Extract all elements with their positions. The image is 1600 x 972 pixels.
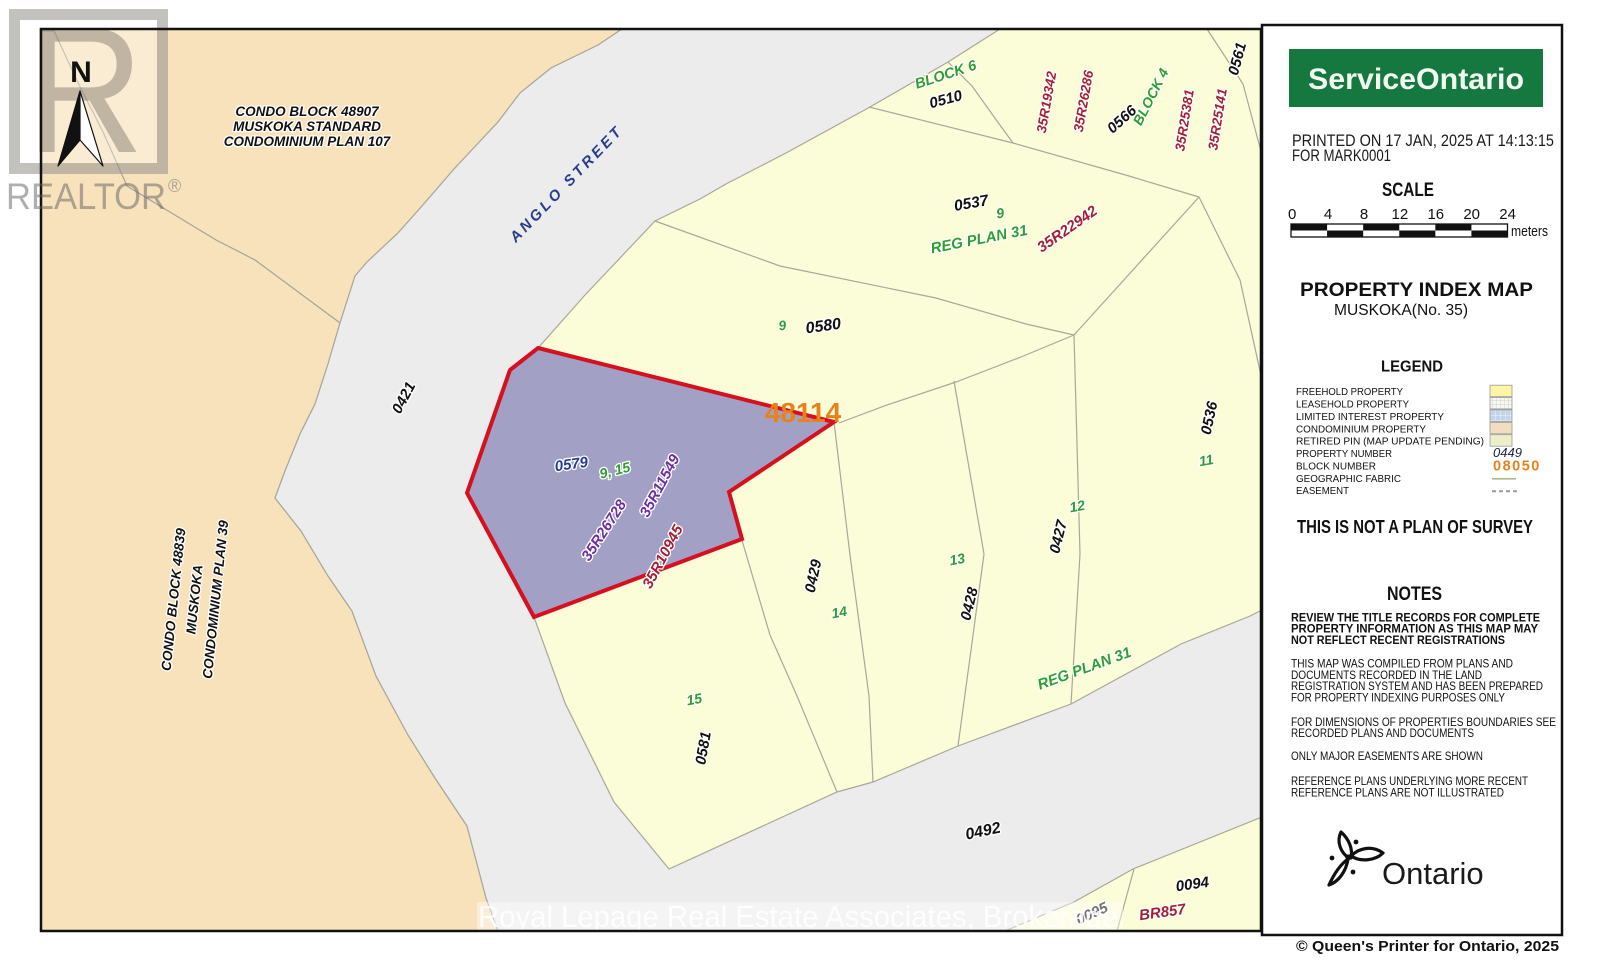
svg-text:16: 16 bbox=[1427, 206, 1444, 223]
svg-text:© Queen's Printer for Ontario,: © Queen's Printer for Ontario, 2025 bbox=[1296, 938, 1559, 955]
svg-text:14: 14 bbox=[830, 603, 848, 621]
svg-text:CONDOMINIUM PLAN 107: CONDOMINIUM PLAN 107 bbox=[224, 134, 392, 149]
svg-text:LEASEHOLD PROPERTY: LEASEHOLD PROPERTY bbox=[1296, 399, 1409, 411]
svg-text:N: N bbox=[70, 56, 92, 89]
svg-text:RECORDED PLANS AND DOCUMENTS: RECORDED PLANS AND DOCUMENTS bbox=[1291, 726, 1474, 740]
svg-text:12: 12 bbox=[1068, 497, 1086, 515]
svg-text:REALTOR: REALTOR bbox=[6, 176, 166, 217]
svg-text:CONDOMINIUM PROPERTY: CONDOMINIUM PROPERTY bbox=[1296, 423, 1426, 435]
svg-text:Royal Lepage Real Estate Assoc: Royal Lepage Real Estate Associates, Bro… bbox=[478, 899, 1118, 934]
svg-text:13: 13 bbox=[948, 550, 966, 568]
svg-text:®: ® bbox=[168, 176, 181, 196]
svg-text:15: 15 bbox=[685, 690, 703, 708]
svg-text:REFERENCE PLANS ARE NOT ILLUST: REFERENCE PLANS ARE NOT ILLUSTRATED bbox=[1291, 785, 1504, 799]
svg-text:8: 8 bbox=[1360, 206, 1368, 223]
svg-text:BLOCK NUMBER: BLOCK NUMBER bbox=[1296, 460, 1376, 472]
svg-text:24: 24 bbox=[1499, 206, 1516, 223]
svg-text:MUSKOKA STANDARD: MUSKOKA STANDARD bbox=[233, 119, 381, 134]
svg-text:CONDO BLOCK 48907: CONDO BLOCK 48907 bbox=[235, 104, 380, 119]
svg-text:THIS IS NOT A PLAN OF SURVEY: THIS IS NOT A PLAN OF SURVEY bbox=[1297, 517, 1533, 537]
svg-text:11: 11 bbox=[1198, 451, 1215, 469]
svg-text:FREEHOLD PROPERTY: FREEHOLD PROPERTY bbox=[1296, 386, 1403, 398]
svg-text:12: 12 bbox=[1392, 206, 1409, 223]
svg-text:EASEMENT: EASEMENT bbox=[1296, 485, 1350, 497]
svg-text:NOT REFLECT RECENT REGISTRATIO: NOT REFLECT RECENT REGISTRATIONS bbox=[1291, 633, 1505, 647]
svg-text:Ontario: Ontario bbox=[1382, 856, 1484, 891]
svg-text:PROPERTY INDEX MAP: PROPERTY INDEX MAP bbox=[1300, 279, 1533, 301]
svg-text:NOTES: NOTES bbox=[1387, 584, 1442, 605]
svg-text:20: 20 bbox=[1463, 206, 1480, 223]
svg-text:ServiceOntario: ServiceOntario bbox=[1308, 63, 1524, 96]
svg-text:FOR PROPERTY INDEXING PURPOSES: FOR PROPERTY INDEXING PURPOSES ONLY bbox=[1291, 691, 1505, 705]
svg-text:GEOGRAPHIC FABRIC: GEOGRAPHIC FABRIC bbox=[1296, 473, 1401, 485]
svg-text:4: 4 bbox=[1324, 206, 1332, 223]
svg-text:meters: meters bbox=[1511, 223, 1548, 240]
svg-text:0: 0 bbox=[1288, 206, 1296, 223]
svg-text:SCALE: SCALE bbox=[1382, 180, 1434, 201]
svg-text:FOR MARK0001: FOR MARK0001 bbox=[1292, 147, 1391, 165]
svg-text:LIMITED INTEREST PROPERTY: LIMITED INTEREST PROPERTY bbox=[1296, 411, 1444, 423]
svg-text:08050: 08050 bbox=[1493, 458, 1541, 474]
svg-text:ONLY MAJOR EASEMENTS ARE SHOWN: ONLY MAJOR EASEMENTS ARE SHOWN bbox=[1291, 749, 1483, 763]
svg-text:PROPERTY NUMBER: PROPERTY NUMBER bbox=[1296, 448, 1392, 460]
svg-text:LEGEND: LEGEND bbox=[1381, 359, 1443, 376]
svg-text:RETIRED PIN (MAP UPDATE PENDIN: RETIRED PIN (MAP UPDATE PENDING) bbox=[1296, 436, 1484, 448]
svg-text:MUSKOKA(No. 35): MUSKOKA(No. 35) bbox=[1334, 302, 1468, 319]
svg-text:48114: 48114 bbox=[765, 397, 842, 428]
